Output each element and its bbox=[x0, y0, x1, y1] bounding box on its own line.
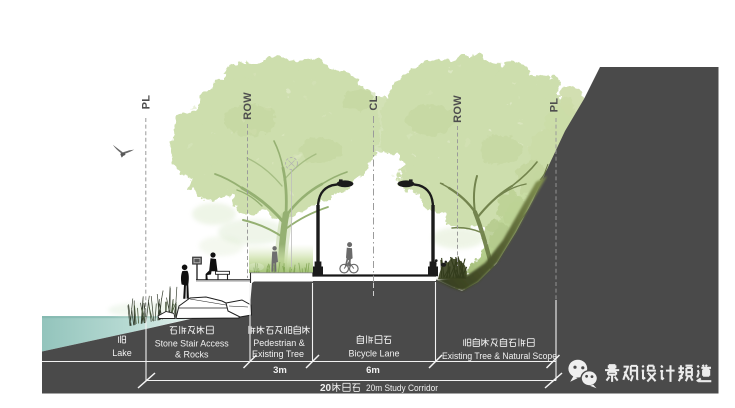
svg-text:3m: 3m bbox=[273, 365, 287, 376]
svg-text:CL: CL bbox=[368, 95, 380, 110]
svg-text:Pedestrian &: Pedestrian & bbox=[253, 338, 305, 348]
svg-text:Existing Tree: Existing Tree bbox=[252, 349, 304, 359]
svg-text:ROW: ROW bbox=[452, 95, 464, 123]
svg-text:ROW: ROW bbox=[242, 92, 254, 120]
svg-text:& Rocks: & Rocks bbox=[175, 350, 209, 360]
svg-text:PL: PL bbox=[549, 98, 561, 113]
svg-text:Bicycle Lane: Bicycle Lane bbox=[348, 349, 399, 359]
svg-text:Existing Tree & Natural Scope: Existing Tree & Natural Scope bbox=[442, 351, 557, 361]
svg-text:20: 20 bbox=[320, 383, 332, 394]
svg-text:Lake: Lake bbox=[112, 348, 132, 358]
svg-text:Stone Stair Access: Stone Stair Access bbox=[155, 339, 229, 349]
svg-text:20m Study Corridor: 20m Study Corridor bbox=[366, 383, 438, 394]
svg-text:6m: 6m bbox=[366, 365, 380, 376]
svg-text:PL: PL bbox=[141, 95, 153, 110]
